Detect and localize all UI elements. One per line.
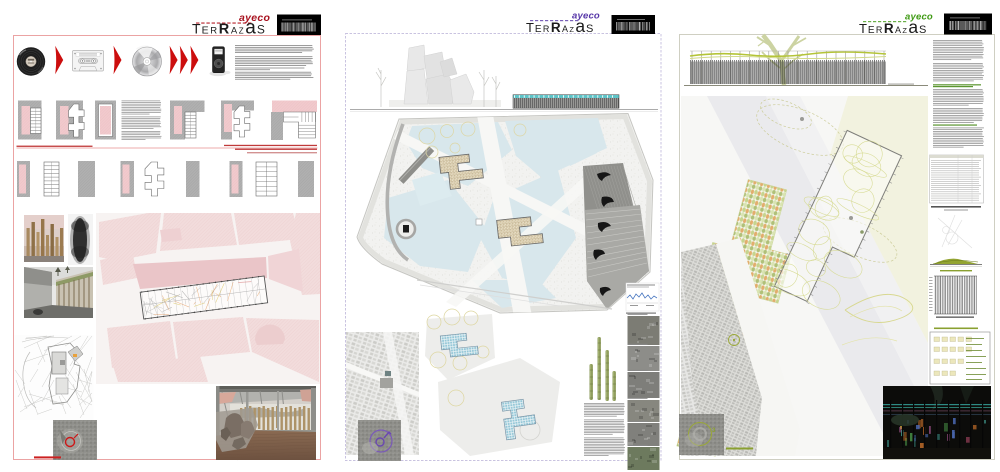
svg-text:TERRAZaS: TERRAZaS [859,17,928,37]
svg-text:TERRAZaS: TERRAZaS [526,16,595,36]
svg-text:TERRAZaS: TERRAZaS [192,18,267,39]
